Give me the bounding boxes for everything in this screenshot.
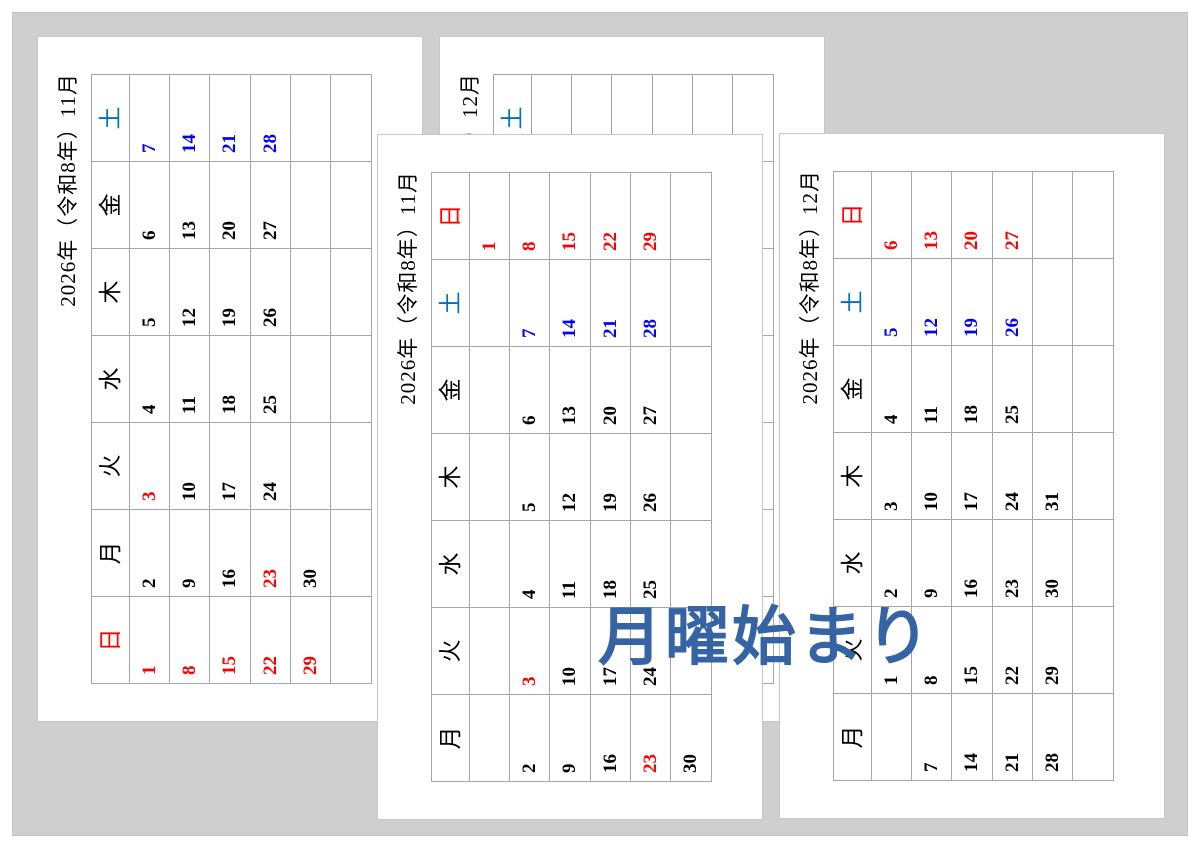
week-row: 9101112131415 <box>550 173 590 781</box>
day-cell-25: 25 <box>631 520 671 607</box>
day-cell-29: 29 <box>631 173 671 259</box>
day-cell-13: 13 <box>550 346 590 433</box>
weekday-header-土: 土 <box>432 259 470 346</box>
day-cell-17: 17 <box>952 432 992 519</box>
week-row: 30 <box>671 173 711 781</box>
day-cell-27: 27 <box>993 172 1033 258</box>
day-cell-4: 4 <box>130 335 170 422</box>
day-cell-2: 2 <box>510 694 550 781</box>
weekday-header-火: 火 <box>432 607 470 694</box>
day-cell-9: 9 <box>550 694 590 781</box>
day-cell-empty <box>291 422 331 509</box>
day-cell-5: 5 <box>872 258 912 345</box>
weekday-header-水: 水 <box>432 520 470 607</box>
day-cell-7: 7 <box>130 75 170 161</box>
day-cell-empty <box>1033 345 1073 432</box>
week-row: 2345678 <box>510 173 550 781</box>
day-cell-2: 2 <box>130 509 170 596</box>
day-cell-1: 1 <box>470 173 510 259</box>
day-cell-23: 23 <box>993 519 1033 606</box>
weekday-header-金: 金 <box>432 346 470 433</box>
day-cell-6: 6 <box>130 161 170 248</box>
page-title: 2026年（令和8年）12月 <box>797 170 823 818</box>
day-cell-21: 21 <box>210 75 250 161</box>
day-cell-23: 23 <box>251 509 291 596</box>
day-cell-18: 18 <box>210 335 250 422</box>
week-row: 28293031 <box>1033 172 1073 780</box>
day-cell-empty <box>1073 519 1113 606</box>
day-cell-11: 11 <box>550 520 590 607</box>
day-cell-empty <box>331 596 371 683</box>
weekday-header-金: 金 <box>92 161 130 248</box>
day-cell-20: 20 <box>591 346 631 433</box>
day-cell-28: 28 <box>251 75 291 161</box>
day-cell-22: 22 <box>591 173 631 259</box>
day-cell-empty <box>1073 345 1113 432</box>
weekday-header-火: 火 <box>92 422 130 509</box>
day-cell-17: 17 <box>210 422 250 509</box>
day-cell-empty <box>470 607 510 694</box>
day-cell-3: 3 <box>872 432 912 519</box>
day-cell-empty <box>291 248 331 335</box>
weekday-header-row: 月火水木金土日 <box>432 173 470 781</box>
day-cell-23: 23 <box>631 694 671 781</box>
week-row: 1234567 <box>130 75 170 683</box>
day-cell-empty <box>671 259 711 346</box>
day-cell-3: 3 <box>510 607 550 694</box>
weekday-header-row: 日月火水木金土 <box>92 75 130 683</box>
day-cell-15: 15 <box>550 173 590 259</box>
week-row: 22232425262728 <box>251 75 291 683</box>
weekday-header-日: 日 <box>432 173 470 259</box>
day-cell-19: 19 <box>210 248 250 335</box>
day-cell-24: 24 <box>251 422 291 509</box>
day-cell-empty <box>671 346 711 433</box>
day-cell-7: 7 <box>912 693 952 780</box>
day-cell-empty <box>1073 693 1113 780</box>
sheet-december-monday-start: 2026年（令和8年）12月 月火水木金土日 12345678910111213… <box>780 134 1164 818</box>
day-cell-26: 26 <box>251 248 291 335</box>
day-cell-29: 29 <box>291 596 331 683</box>
day-cell-31: 31 <box>1033 432 1073 519</box>
day-cell-empty <box>1073 432 1113 519</box>
day-cell-30: 30 <box>1033 519 1073 606</box>
day-cell-21: 21 <box>993 693 1033 780</box>
day-cell-3: 3 <box>130 422 170 509</box>
day-cell-empty <box>331 161 371 248</box>
day-cell-empty <box>291 75 331 161</box>
weekday-header-木: 木 <box>92 248 130 335</box>
week-row: 123456 <box>872 172 912 780</box>
day-cell-21: 21 <box>591 259 631 346</box>
weekday-header-水: 水 <box>92 335 130 422</box>
week-row: 2930 <box>291 75 331 683</box>
day-cell-empty <box>470 346 510 433</box>
day-cell-empty <box>470 520 510 607</box>
day-cell-27: 27 <box>631 346 671 433</box>
day-cell-19: 19 <box>952 258 992 345</box>
day-cell-5: 5 <box>130 248 170 335</box>
day-cell-empty <box>291 161 331 248</box>
week-row: 1 <box>470 173 510 781</box>
day-cell-22: 22 <box>251 596 291 683</box>
day-cell-27: 27 <box>251 161 291 248</box>
day-cell-24: 24 <box>993 432 1033 519</box>
week-row: 78910111213 <box>912 172 952 780</box>
day-cell-empty <box>1033 258 1073 345</box>
rotated-page-content: 2026年（令和8年）12月 月火水木金土日 12345678910111213… <box>780 134 1164 818</box>
weekday-header-日: 日 <box>92 596 130 683</box>
day-cell-12: 12 <box>912 258 952 345</box>
sheet-november-sunday-start: 2026年（令和8年）11月 日月火水木金土 12345678910111213… <box>38 37 422 721</box>
day-cell-empty <box>671 433 711 520</box>
day-cell-10: 10 <box>550 607 590 694</box>
day-cell-empty <box>331 422 371 509</box>
day-cell-empty <box>1073 606 1113 693</box>
calendar-table: 日月火水木金土 12345678910111213141516171819202… <box>91 74 372 684</box>
day-cell-11: 11 <box>912 345 952 432</box>
day-cell-empty <box>671 173 711 259</box>
monday-start-caption: 月曜始まり <box>598 601 933 673</box>
day-cell-16: 16 <box>591 694 631 781</box>
page-title: 2026年（令和8年）11月 <box>55 73 81 721</box>
calendar-table: 月火水木金土日 12345678910111213141516171819202… <box>833 171 1114 781</box>
week-row: 14151617181920 <box>952 172 992 780</box>
day-cell-22: 22 <box>993 606 1033 693</box>
rotated-page-content: 2026年（令和8年）11月 月火水木金土日 12345678910111213… <box>378 135 762 819</box>
week-row: 23242526272829 <box>631 173 671 781</box>
weekday-header-木: 木 <box>834 432 872 519</box>
day-cell-empty <box>331 75 371 161</box>
day-cell-4: 4 <box>872 345 912 432</box>
day-cell-9: 9 <box>170 509 210 596</box>
weekday-header-金: 金 <box>834 345 872 432</box>
day-cell-28: 28 <box>1033 693 1073 780</box>
day-cell-14: 14 <box>170 75 210 161</box>
day-cell-15: 15 <box>210 596 250 683</box>
weekday-header-土: 土 <box>92 75 130 161</box>
day-cell-6: 6 <box>510 346 550 433</box>
day-cell-empty <box>470 694 510 781</box>
day-cell-20: 20 <box>210 161 250 248</box>
day-cell-empty <box>872 693 912 780</box>
day-cell-16: 16 <box>210 509 250 596</box>
rotated-page-content: 2026年（令和8年）11月 日月火水木金土 12345678910111213… <box>38 37 422 721</box>
day-cell-empty <box>1073 258 1113 345</box>
day-cell-14: 14 <box>952 693 992 780</box>
weekday-header-木: 木 <box>432 433 470 520</box>
day-cell-empty <box>1073 172 1113 258</box>
page-title: 2026年（令和8年）11月 <box>395 171 421 819</box>
day-cell-11: 11 <box>170 335 210 422</box>
day-cell-16: 16 <box>952 519 992 606</box>
day-cell-empty <box>470 259 510 346</box>
weekday-header-月: 月 <box>834 693 872 780</box>
day-cell-1: 1 <box>130 596 170 683</box>
day-cell-empty <box>291 335 331 422</box>
day-cell-4: 4 <box>510 520 550 607</box>
day-cell-30: 30 <box>671 694 711 781</box>
day-cell-18: 18 <box>952 345 992 432</box>
weekday-header-日: 日 <box>834 172 872 258</box>
day-cell-28: 28 <box>631 259 671 346</box>
day-cell-26: 26 <box>993 258 1033 345</box>
day-cell-10: 10 <box>170 422 210 509</box>
day-cell-empty <box>671 520 711 607</box>
weekday-header-水: 水 <box>834 519 872 606</box>
weekday-header-月: 月 <box>92 509 130 596</box>
day-cell-empty <box>331 509 371 596</box>
day-cell-12: 12 <box>550 433 590 520</box>
weekday-header-土: 土 <box>834 258 872 345</box>
day-cell-15: 15 <box>952 606 992 693</box>
day-cell-19: 19 <box>591 433 631 520</box>
day-cell-8: 8 <box>170 596 210 683</box>
week-row: 16171819202122 <box>591 173 631 781</box>
day-cell-2: 2 <box>872 519 912 606</box>
calendar-preview-stage: 2026年（令和8年）11月 日月火水木金土 12345678910111213… <box>0 0 1200 848</box>
day-cell-5: 5 <box>510 433 550 520</box>
day-cell-13: 13 <box>170 161 210 248</box>
day-cell-12: 12 <box>170 248 210 335</box>
day-cell-7: 7 <box>510 259 550 346</box>
day-cell-9: 9 <box>912 519 952 606</box>
day-cell-empty <box>331 248 371 335</box>
day-cell-13: 13 <box>912 172 952 258</box>
day-cell-29: 29 <box>1033 606 1073 693</box>
week-row: 891011121314 <box>170 75 210 683</box>
weekday-header-row: 月火水木金土日 <box>834 172 872 780</box>
day-cell-empty <box>470 433 510 520</box>
day-cell-empty <box>331 335 371 422</box>
weekday-header-月: 月 <box>432 694 470 781</box>
day-cell-30: 30 <box>291 509 331 596</box>
day-cell-26: 26 <box>631 433 671 520</box>
day-cell-18: 18 <box>591 520 631 607</box>
day-cell-25: 25 <box>251 335 291 422</box>
day-cell-8: 8 <box>510 173 550 259</box>
week-row <box>331 75 371 683</box>
week-row: 15161718192021 <box>210 75 250 683</box>
day-cell-10: 10 <box>912 432 952 519</box>
day-cell-25: 25 <box>993 345 1033 432</box>
calendar-table: 月火水木金土日 12345678910111213141516171819202… <box>431 172 712 782</box>
day-cell-20: 20 <box>952 172 992 258</box>
sheet-november-monday-start: 2026年（令和8年）11月 月火水木金土日 12345678910111213… <box>378 135 762 819</box>
week-row: 21222324252627 <box>993 172 1033 780</box>
day-cell-empty <box>1033 172 1073 258</box>
day-cell-14: 14 <box>550 259 590 346</box>
week-row <box>1073 172 1113 780</box>
day-cell-6: 6 <box>872 172 912 258</box>
